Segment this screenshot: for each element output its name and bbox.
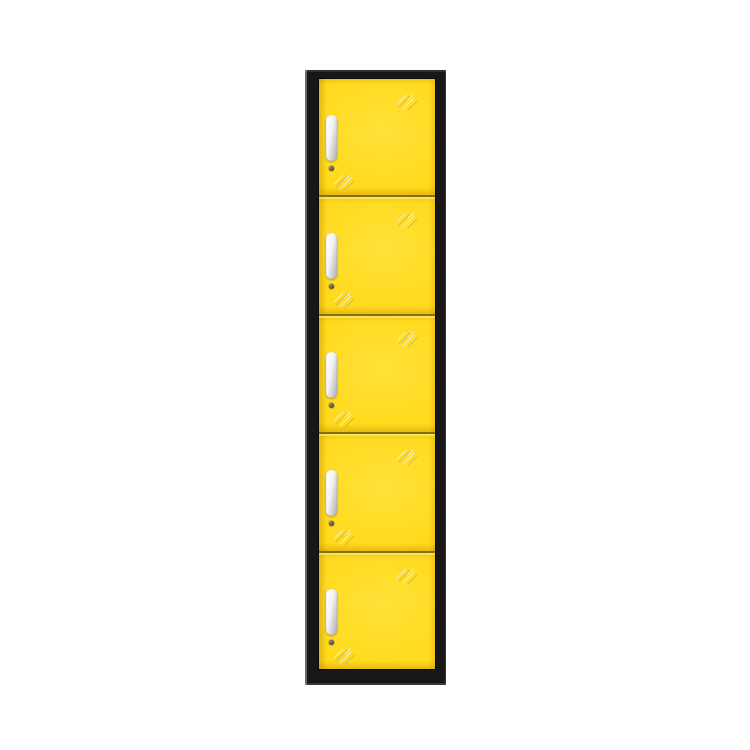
keyhole-lock [329,284,334,289]
locker-door-column [319,79,435,669]
locker-door-2 [319,195,435,313]
door-handle [326,352,337,398]
shine-marks-icon [396,444,420,466]
shine-marks-icon [396,89,420,111]
locker-door-3 [319,314,435,432]
shine-marks-icon [396,326,420,348]
shine-marks-icon [333,643,357,665]
keyhole-lock [329,166,334,171]
shine-marks-icon [333,169,357,191]
locker-door-4 [319,432,435,550]
product-image [0,0,750,750]
shine-marks-icon [333,406,357,428]
door-handle [326,233,337,279]
shine-marks-icon [333,524,357,546]
keyhole-lock [329,640,334,645]
keyhole-lock [329,403,334,408]
locker-door-1 [319,79,435,195]
door-handle [326,115,337,161]
door-handle [326,589,337,635]
shine-marks-icon [333,287,357,309]
shine-marks-icon [396,207,420,229]
keyhole-lock [329,521,334,526]
shine-marks-icon [396,563,420,585]
locker-door-5 [319,551,435,669]
door-handle [326,470,337,516]
locker-cabinet [305,70,446,685]
